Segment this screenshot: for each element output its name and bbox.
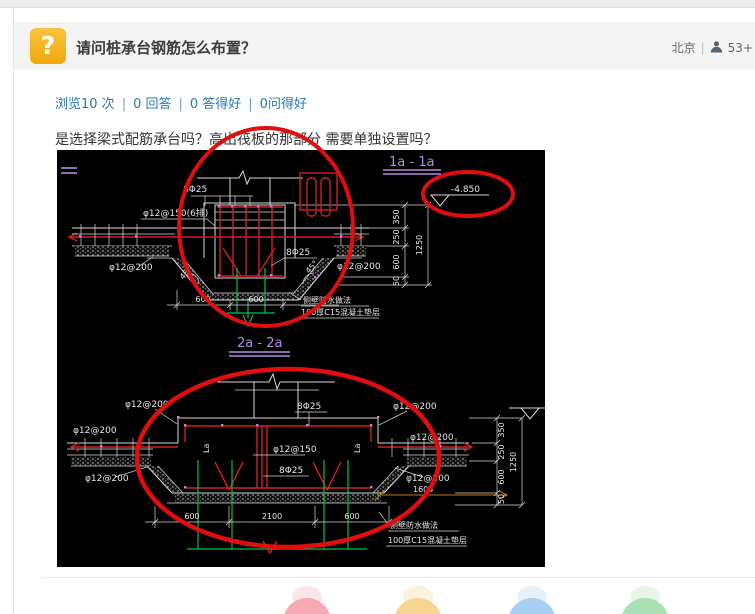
note-cushion-2a: 100厚C15混凝土垫层: [388, 535, 467, 545]
question-title: 请问桩承台钢筋怎么布置？: [76, 37, 256, 58]
location-label: 北京: [672, 39, 696, 56]
meta-separator: |: [701, 41, 705, 55]
answers-count: 0 回答: [133, 97, 171, 112]
question-header: ? 请问桩承台钢筋怎么布置？ 北京 | 53+: [14, 22, 755, 70]
dim-600-2a: 600: [497, 469, 506, 484]
note-waterproof-2a: 侧壁防水做法: [390, 520, 438, 530]
stats-separator: |: [241, 97, 259, 112]
label-slab-left: φ12@200: [109, 263, 153, 273]
label-slab-right: φ12@200: [337, 262, 381, 272]
dim-1250-2a: 1250: [509, 452, 518, 472]
label-bottom-right: φ12@200: [406, 474, 450, 484]
question-body-text: 是选择梁式配筋承台吗？高出筏板的那部分 需要单独设置吗？: [55, 129, 437, 149]
dim-2100: 2100: [262, 512, 282, 521]
lap-length-right: La: [353, 444, 362, 453]
dim-600-right-2a: 600: [344, 512, 359, 521]
share-circle-blue[interactable]: [508, 598, 556, 614]
good-answers-count: 0 答得好: [190, 97, 241, 112]
dim-600: 600: [392, 254, 401, 269]
label-bottom-left: φ12@200: [85, 474, 129, 484]
good-questions-count: 0问得好: [260, 97, 307, 112]
note-cushion: 100厚C15混凝土垫层: [301, 307, 380, 317]
qa-page: ? 请问桩承台钢筋怎么布置？ 北京 | 53+ 浏览10 次|0 回答|0 答得…: [0, 0, 755, 614]
content-divider: [41, 577, 755, 578]
dim-50: 50: [392, 276, 401, 286]
question-stats: 浏览10 次|0 回答|0 答得好|0问得好: [55, 93, 307, 112]
dim-1605: 1605: [413, 485, 433, 494]
dim-1250: 1250: [415, 235, 424, 255]
page-top-strip: [0, 0, 755, 8]
person-icon: [710, 40, 723, 56]
elevation-label: -4.850: [451, 185, 480, 195]
label-bars-bottom: 8Φ25: [279, 466, 303, 476]
label-top-left: φ12@200: [125, 400, 169, 410]
dim-600-right: 600: [248, 295, 263, 304]
dim-600-left-2a: 600: [184, 512, 199, 521]
label-mid: φ12@150: [273, 445, 317, 455]
label-bars-mid: 8Φ25: [286, 248, 310, 258]
label-right: φ12@200: [410, 433, 454, 443]
label-bars-top: 8Φ25: [183, 185, 207, 195]
section-title-2a: 2a - 2a: [237, 336, 282, 351]
user-count: 53+: [728, 41, 753, 55]
share-circle-pink[interactable]: [283, 598, 331, 614]
section-title-1a: 1a - 1a: [389, 155, 434, 170]
section-1a: 1a - 1a -4.850 8Φ25: [61, 155, 489, 326]
header-meta: 北京 | 53+: [672, 39, 753, 56]
lap-length-left: La: [202, 444, 211, 453]
left-border-rule: [13, 7, 14, 614]
section-2a: 2a - 2a 8Φ25: [67, 336, 545, 553]
dim-250: 250: [392, 229, 401, 244]
share-circle-green[interactable]: [621, 598, 669, 614]
label-top-right: φ12@200: [393, 402, 437, 412]
label-slab-top: φ12@150(6排): [143, 207, 208, 219]
note-waterproof: 侧壁防水做法: [303, 295, 351, 305]
cad-drawing: 1a - 1a -4.850 8Φ25: [57, 150, 545, 567]
dim-250-2a: 250: [497, 444, 506, 459]
stats-separator: |: [115, 97, 133, 112]
cad-image[interactable]: 1a - 1a -4.850 8Φ25: [57, 150, 545, 567]
label-left: φ12@200: [73, 426, 117, 436]
question-mark-icon: ?: [30, 28, 66, 64]
label-bars-top-2a: 8Φ25: [297, 402, 321, 412]
dim-600-left: 600: [195, 295, 210, 304]
stats-separator: |: [171, 97, 189, 112]
dim-350: 350: [392, 209, 401, 224]
views-count: 浏览10 次: [55, 97, 115, 112]
dim-50-2a: 50: [497, 494, 506, 504]
share-circle-yellow[interactable]: [394, 598, 442, 614]
dim-350-2a: 350: [497, 422, 506, 437]
